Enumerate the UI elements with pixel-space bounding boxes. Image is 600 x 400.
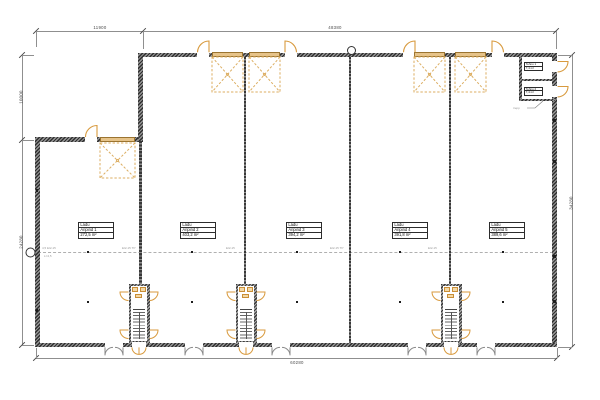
unit-area: 391,8 m² bbox=[393, 233, 427, 238]
techroom-wall-bottom bbox=[519, 99, 555, 102]
stair-shaft-interior bbox=[443, 286, 459, 341]
leader-line bbox=[527, 101, 543, 108]
floor-plan-canvas: 11900 48380 10000 24280 34280 60280 bbox=[0, 0, 600, 400]
door-opening bbox=[197, 52, 209, 58]
door-opening bbox=[85, 137, 97, 143]
fire-note: EI2-15 TP bbox=[330, 246, 343, 250]
door-opening bbox=[492, 52, 504, 58]
door-opening bbox=[285, 52, 297, 58]
unit-label-5: Ladu Äripind 5 389,6 m² bbox=[489, 222, 525, 239]
overhead-door-lintel bbox=[455, 52, 486, 57]
overhead-door-lintel bbox=[100, 137, 135, 142]
stair-fixture bbox=[247, 287, 253, 292]
dim-ext bbox=[558, 55, 572, 56]
room-area: 7,4 m² bbox=[525, 67, 542, 71]
door-opening bbox=[185, 342, 203, 348]
fire-note: EI2-15 TP bbox=[122, 246, 135, 250]
column-marker bbox=[553, 160, 556, 163]
stair-fixture bbox=[132, 287, 138, 292]
overhead-door-lintel bbox=[249, 52, 280, 57]
column-marker bbox=[87, 301, 90, 304]
stair-fixture bbox=[140, 287, 146, 292]
leader-text: trepp bbox=[513, 106, 520, 110]
dim-ext bbox=[36, 348, 37, 358]
stair-centerline bbox=[451, 312, 452, 339]
door-opening bbox=[552, 86, 558, 97]
door-opening bbox=[552, 61, 558, 72]
door-opening bbox=[105, 342, 123, 348]
fire-note: 4,5 EI2-15 bbox=[42, 246, 56, 250]
bottom-double-doors bbox=[105, 347, 495, 355]
stair-landing-line bbox=[445, 309, 457, 310]
dim-ext bbox=[22, 140, 34, 141]
fire-note: EI2-15 bbox=[226, 246, 235, 250]
stair-shaft-interior bbox=[238, 286, 254, 341]
unit-label-2: Ladu Äripind 2 403,2 m² bbox=[180, 222, 216, 239]
dim-line-top bbox=[36, 31, 556, 32]
dim-ext bbox=[557, 348, 558, 358]
door-opening bbox=[477, 342, 495, 348]
unit-label-4: Ladu Äripind 4 391,8 m² bbox=[392, 222, 428, 239]
unit-area: 403,2 m² bbox=[181, 233, 215, 238]
stair-centerline bbox=[139, 312, 140, 339]
unit-label-1: Ladu Äripind 1 272,5 m² bbox=[78, 222, 114, 239]
door-opening bbox=[272, 342, 290, 348]
column-marker bbox=[553, 119, 556, 122]
dim-top-left: 11900 bbox=[70, 25, 130, 30]
techroom-label-1: Tehno 1 7,4 m² bbox=[524, 62, 543, 71]
stair-shaft-2 bbox=[236, 284, 257, 344]
room-area: 7,4 m² bbox=[525, 91, 542, 95]
unit-area: 389,6 m² bbox=[490, 233, 524, 238]
dim-right: 34280 bbox=[569, 196, 574, 209]
column-marker bbox=[502, 301, 505, 304]
column-marker bbox=[296, 251, 299, 254]
stair-fixture bbox=[452, 287, 458, 292]
dim-left-lower: 24280 bbox=[19, 235, 24, 248]
dim-top-right: 48380 bbox=[305, 25, 365, 30]
wall-left bbox=[35, 137, 40, 347]
dim-ext bbox=[556, 31, 557, 49]
stair-landing-line bbox=[133, 309, 145, 310]
column-marker bbox=[502, 251, 505, 254]
stair-fixture bbox=[444, 287, 450, 292]
stair-fixture bbox=[242, 294, 249, 298]
stair-shaft-interior bbox=[131, 286, 147, 341]
door-opening bbox=[408, 342, 426, 348]
wall-step bbox=[138, 53, 143, 142]
column-marker bbox=[36, 189, 39, 192]
stair-shaft-3 bbox=[441, 284, 462, 344]
column-marker bbox=[191, 251, 194, 254]
column-marker bbox=[87, 251, 90, 254]
partition-3-4 bbox=[349, 57, 351, 343]
column-marker bbox=[399, 301, 402, 304]
dim-ext bbox=[22, 55, 34, 56]
dim-ext bbox=[558, 347, 572, 348]
column-marker bbox=[553, 255, 556, 258]
overhead-door-lintel bbox=[212, 52, 243, 57]
unit-area: 272,5 m² bbox=[79, 233, 113, 238]
stair-shaft-1 bbox=[129, 284, 150, 344]
techroom-divider bbox=[522, 79, 553, 81]
overhead-door-squares bbox=[100, 57, 486, 178]
overhead-door-lintel bbox=[414, 52, 445, 57]
stair-fixture bbox=[239, 287, 245, 292]
column-marker bbox=[36, 309, 39, 312]
dim-ext bbox=[22, 345, 34, 346]
dim-ext bbox=[143, 31, 144, 49]
stair-centerline bbox=[246, 312, 247, 339]
stair-fixture bbox=[447, 294, 454, 298]
unit-label-3: Ladu Äripind 3 394,2 m² bbox=[286, 222, 322, 239]
door-opening bbox=[444, 342, 458, 348]
dim-left-upper: 10000 bbox=[19, 90, 24, 103]
unit-area: 394,2 m² bbox=[287, 233, 321, 238]
dim-ext bbox=[36, 31, 37, 47]
fire-note: L=4,5 bbox=[44, 254, 52, 258]
door-opening bbox=[132, 342, 146, 348]
door-opening bbox=[239, 342, 253, 348]
stair-landing-line bbox=[240, 309, 252, 310]
stair-fixture bbox=[135, 294, 142, 298]
column-marker bbox=[399, 251, 402, 254]
fire-note: EI2-15 bbox=[428, 246, 437, 250]
column-marker bbox=[296, 301, 299, 304]
column-marker bbox=[191, 301, 194, 304]
dim-bottom: 60280 bbox=[267, 360, 327, 365]
column-marker bbox=[553, 300, 556, 303]
techroom-label-2: Tehno 2 7,4 m² bbox=[524, 87, 543, 96]
plan-symbols bbox=[0, 0, 600, 400]
